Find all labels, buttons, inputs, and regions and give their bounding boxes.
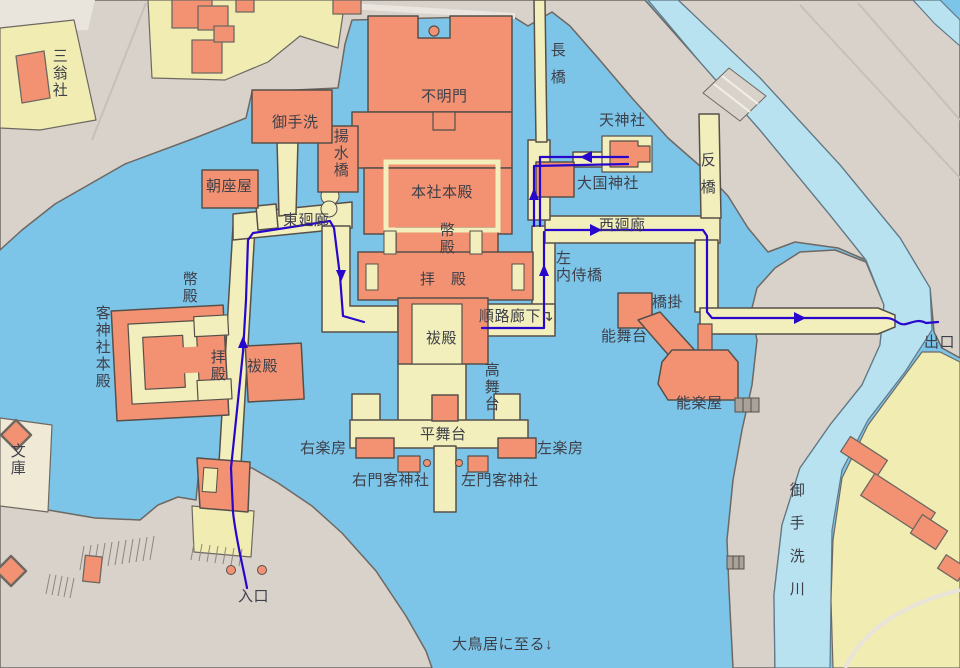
label-nogakuya: 能楽屋 [676, 396, 723, 413]
label-daikokujinja: 大国神社 [577, 176, 639, 193]
label-hidari-naishibashi: 左 内侍橋 [556, 251, 603, 285]
shrine-map: 三翁社御手洗揚水橋不明門長橋天神社大国神社反橋朝座屋東廻廊本社本殿幣殿西廻廊拝 … [0, 0, 960, 668]
label-heiden-center: 幣殿 [437, 222, 454, 256]
label-heiden-left: 幣殿 [180, 271, 197, 305]
label-junro-roka: 順路廊下↴ [479, 309, 554, 326]
label-yosuibashi: 揚水橋 [331, 128, 348, 179]
label-haraeden-left: 祓殿 [247, 359, 278, 376]
label-otorii: 大鳥居に至る↓ [452, 637, 553, 654]
label-asazaya: 朝座屋 [206, 179, 253, 196]
label-mitarashi: 御手洗 [272, 115, 319, 132]
label-tenjinsha: 天神社 [599, 113, 646, 130]
label-hidari-gakubo: 左楽房 [537, 441, 584, 458]
label-haiden-center: 拝 殿 [420, 272, 467, 289]
label-fumeimon: 不明門 [421, 89, 468, 106]
label-iriguchi: 入口 [238, 589, 269, 606]
label-migi-gakubo: 右楽房 [300, 441, 347, 458]
label-hashigakari: 橋掛 [652, 295, 683, 312]
label-migimon-kyakujinja: 右門客神社 [352, 473, 430, 490]
label-nagahashi: 長橋 [548, 42, 565, 96]
label-nobutai: 能舞台 [601, 329, 648, 346]
label-sannosha: 三翁社 [50, 48, 67, 99]
label-kyakujinja-honden: 客神社本殿 [93, 305, 110, 390]
label-hirabutai: 平舞台 [420, 427, 467, 444]
label-hidarimon-kyakujinja: 左門客神社 [461, 473, 539, 490]
label-takabutai: 高舞台 [482, 362, 499, 413]
label-haiden-left: 拝殿 [208, 349, 225, 383]
label-higashikairo: 東廻廊 [283, 213, 330, 230]
label-nishikairo: 西廻廊 [599, 218, 646, 235]
label-sorihashi: 反橋 [698, 152, 715, 206]
label-deguchi: 出口 [924, 335, 955, 352]
label-honsha-honden: 本社本殿 [411, 185, 473, 202]
map-labels: 三翁社御手洗揚水橋不明門長橋天神社大国神社反橋朝座屋東廻廊本社本殿幣殿西廻廊拝 … [0, 0, 960, 668]
label-bunko: 文庫 [8, 443, 25, 477]
label-mitarashigawa: 御手洗川 [787, 482, 804, 614]
label-haraeden-center: 祓殿 [426, 331, 457, 348]
